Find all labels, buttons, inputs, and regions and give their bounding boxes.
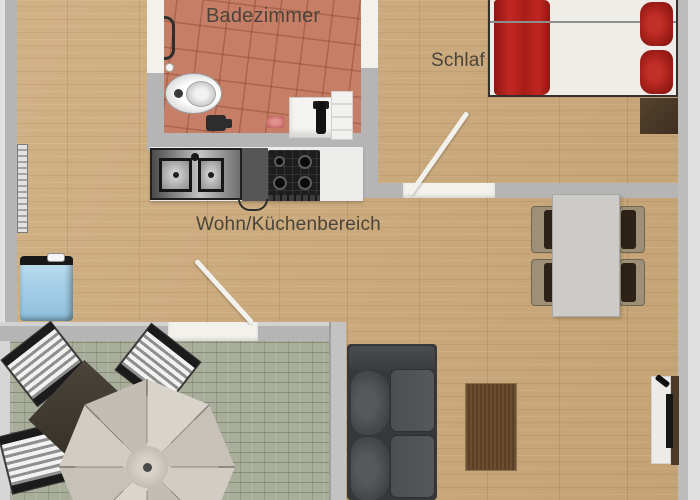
washing-machine <box>20 256 73 321</box>
dining-table <box>552 194 620 317</box>
rug <box>466 384 516 470</box>
gas-hob <box>268 150 320 197</box>
bed-pillow-red <box>640 2 673 94</box>
sofa-back-cushion <box>351 371 389 435</box>
kitchen-counter <box>150 147 363 201</box>
bed <box>488 0 678 97</box>
toilet-bowl <box>186 81 216 107</box>
sofa <box>347 344 437 500</box>
nightstand <box>640 98 678 134</box>
bathroom-bedroom-opening <box>361 0 378 68</box>
sink-basin-left <box>159 158 192 192</box>
bathroom-accessory <box>266 116 285 128</box>
floor-plan: Badezimmer Schlaf Wohn/Küchenbereich <box>0 0 700 500</box>
chair-backrest <box>621 210 636 249</box>
radiator <box>17 144 28 233</box>
toilet <box>165 73 222 114</box>
hob-burner <box>298 176 312 190</box>
hob-burner <box>273 176 287 190</box>
wall-shelf <box>331 91 353 140</box>
towel-rail <box>164 16 175 60</box>
washer-handle <box>47 253 65 262</box>
bedroom-label: Schlaf <box>431 50 485 72</box>
wall-right-outer <box>678 0 700 500</box>
living-kitchen-label: Wohn/Küchenbereich <box>196 214 381 236</box>
parasol-pole <box>143 463 152 472</box>
hob-burner <box>274 156 285 167</box>
kitchen-faucet <box>191 153 199 161</box>
wall-terrace-east <box>329 322 346 500</box>
sofa-seat-cushion <box>390 435 435 498</box>
terrace-door-threshold <box>168 322 258 341</box>
dining-chair <box>619 206 645 253</box>
dining-chair <box>619 259 645 306</box>
bathroom-label: Badezimmer <box>206 5 320 28</box>
sink-faucet <box>316 102 326 134</box>
sofa-armrest <box>349 346 435 370</box>
chair-backrest <box>621 263 636 302</box>
tv <box>666 394 673 448</box>
sofa-back-cushion <box>351 437 389 500</box>
toilet-hinge <box>174 89 183 98</box>
counter-section-dark <box>242 148 268 201</box>
hob-front-edge <box>268 195 320 201</box>
wall-left-outer <box>0 0 17 341</box>
bathroom-door-opening <box>147 0 164 73</box>
kitchen-sink-unit <box>150 148 242 200</box>
sofa-seat-cushion <box>390 369 435 432</box>
bathroom-bin <box>206 115 226 131</box>
hob-burner <box>298 155 312 169</box>
wall-fixture-dot <box>165 63 174 72</box>
sink-basin-right <box>198 158 224 192</box>
bed-blanket-red <box>494 0 550 95</box>
